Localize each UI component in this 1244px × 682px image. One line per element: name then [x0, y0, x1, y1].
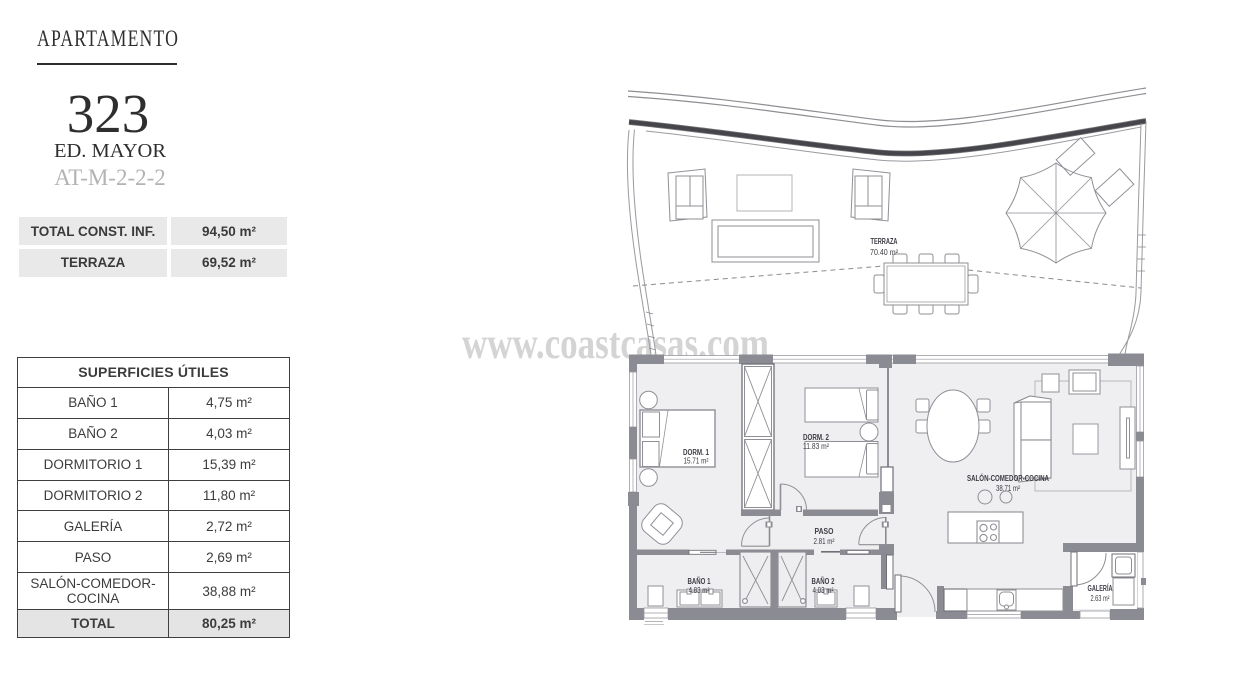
svg-text:4.83 m²: 4.83 m² — [689, 586, 710, 595]
svg-text:TERRAZA: TERRAZA — [871, 236, 898, 246]
svg-text:15.71 m²: 15.71 m² — [684, 457, 709, 466]
svg-text:BAÑO 2: BAÑO 2 — [812, 576, 835, 586]
svg-text:GALERÍA: GALERÍA — [1088, 583, 1113, 593]
svg-text:70.40 m²: 70.40 m² — [870, 248, 898, 257]
svg-text:2.63 m²: 2.63 m² — [1091, 594, 1110, 603]
svg-text:DORM. 1: DORM. 1 — [683, 447, 709, 457]
svg-text:11.83 m²: 11.83 m² — [803, 442, 829, 451]
svg-text:PASO: PASO — [815, 526, 834, 536]
svg-text:2.81 m²: 2.81 m² — [814, 537, 835, 546]
svg-text:38.71 m²: 38.71 m² — [996, 484, 1020, 493]
svg-text:SALÓN-COMEDOR-COCINA: SALÓN-COMEDOR-COCINA — [967, 472, 1049, 483]
svg-text:DORM. 2: DORM. 2 — [803, 432, 829, 442]
svg-text:4.03 m²: 4.03 m² — [813, 586, 834, 595]
svg-text:BAÑO 1: BAÑO 1 — [688, 576, 711, 586]
